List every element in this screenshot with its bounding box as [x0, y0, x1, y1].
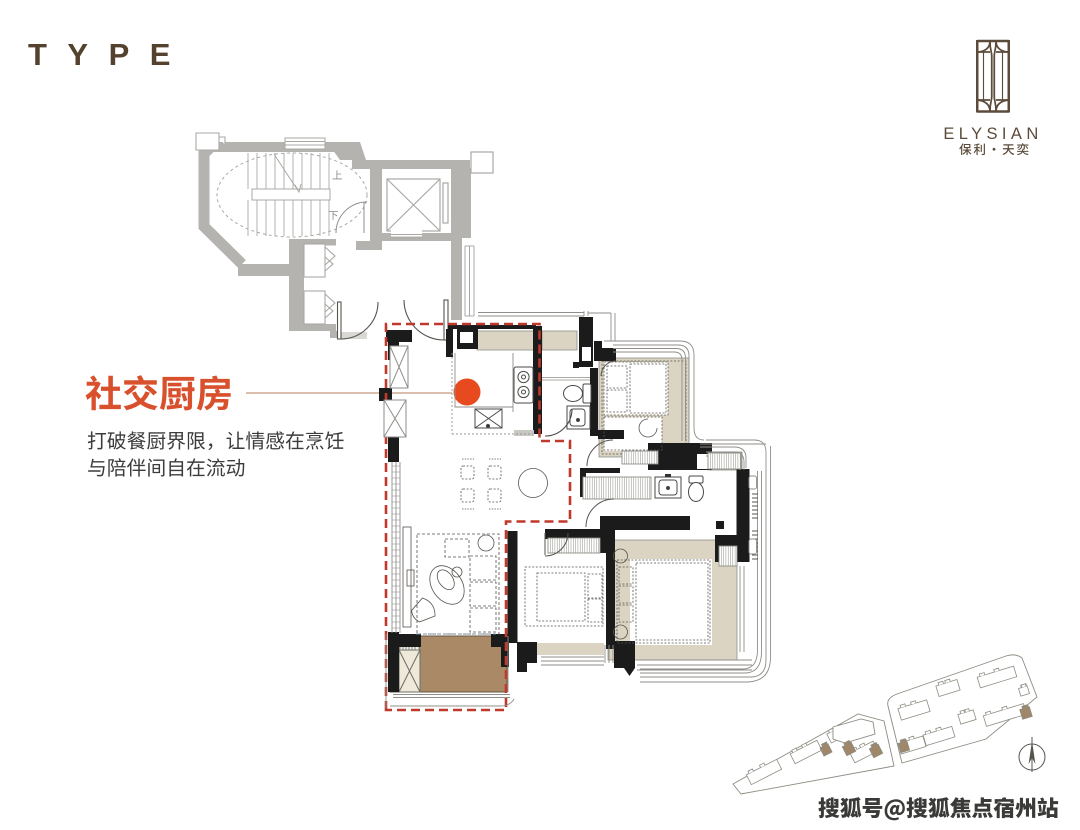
svg-text:ELYSIAN: ELYSIAN [943, 125, 1042, 143]
svg-text:TYPE: TYPE [28, 37, 191, 72]
